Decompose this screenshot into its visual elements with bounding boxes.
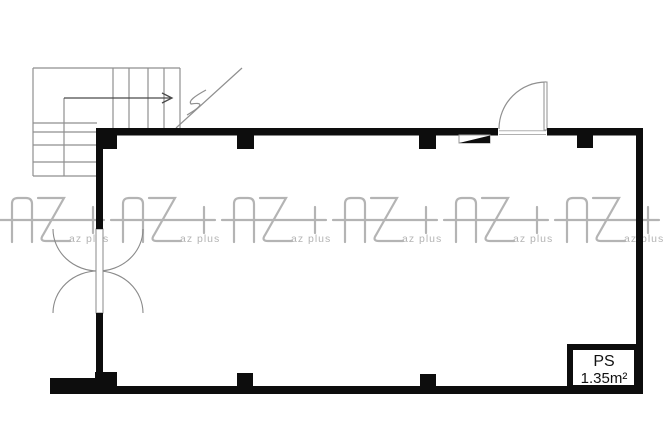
door-leaf <box>544 82 547 130</box>
watermark-caption: az plus <box>180 233 220 245</box>
entrance-step <box>459 135 490 143</box>
wall-bottom-left-extension <box>50 378 96 394</box>
watermark-caption: az plus <box>291 233 331 245</box>
watermark-caption: az plus <box>624 233 664 245</box>
wall-top-right-segment <box>547 128 643 136</box>
column <box>419 128 436 149</box>
pipe-shaft-area: 1.35m² <box>581 370 628 387</box>
column <box>237 373 253 386</box>
column <box>95 372 117 394</box>
floor-plan-canvas: az plus az plus az plus az plus <box>0 0 671 445</box>
column <box>96 128 117 149</box>
pipe-shaft: PS 1.35m² <box>570 347 637 388</box>
pipe-shaft-label: PS <box>593 353 614 370</box>
column <box>577 128 593 148</box>
floor-plan: az plus az plus az plus az plus <box>0 0 671 445</box>
column <box>237 128 254 149</box>
wall-bottom <box>50 386 643 394</box>
watermark-caption: az plus <box>402 233 442 245</box>
wall-top-left-segment <box>96 128 498 136</box>
watermark-caption: az plus <box>513 233 553 245</box>
door-leaf <box>96 229 103 313</box>
column <box>420 374 436 386</box>
